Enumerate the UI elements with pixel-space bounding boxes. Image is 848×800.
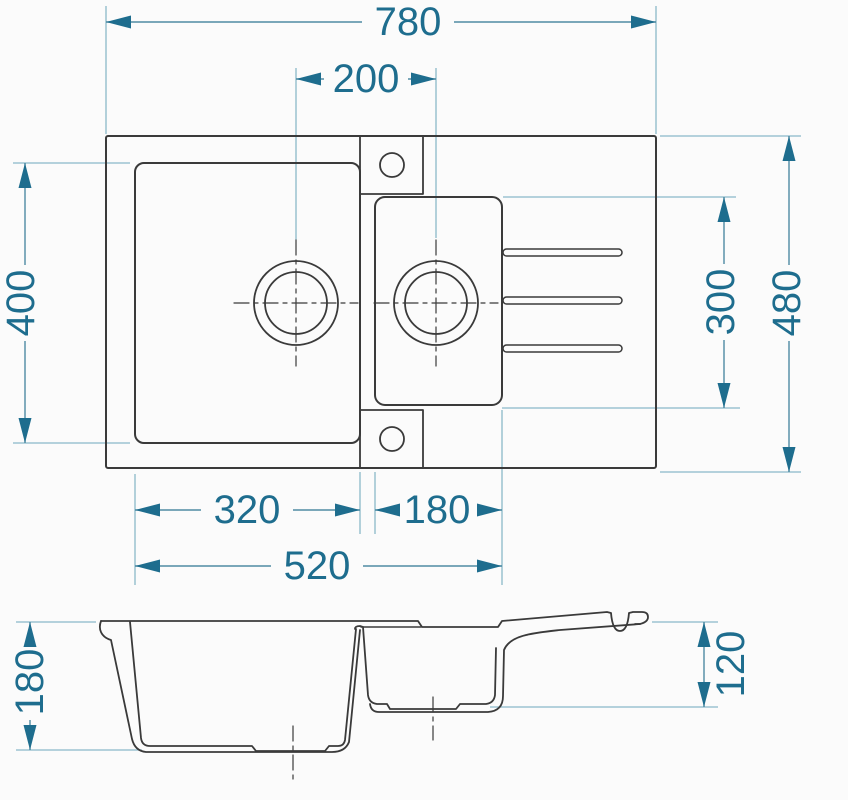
sink-technical-drawing: 780 200 400 300 480 320 180 520 180 120 <box>0 0 848 800</box>
dim-main-bowl-length-label: 400 <box>0 270 43 337</box>
dim-overall-width-label: 780 <box>375 0 442 44</box>
dim-drain-offset-label: 200 <box>333 57 400 101</box>
technical-drawing-page: 780 200 400 300 480 320 180 520 180 120 <box>0 0 848 800</box>
dim-bowls-total-width-label: 520 <box>284 544 351 588</box>
dim-small-bowl-depth-label: 120 <box>709 631 753 698</box>
dim-main-bowl-depth-label: 180 <box>8 649 52 716</box>
dim-overall-depth-label: 480 <box>765 270 809 337</box>
dim-main-bowl-width-label: 320 <box>214 488 281 532</box>
dim-right-section-length-label: 300 <box>699 269 743 336</box>
dim-small-bowl-width-label: 180 <box>404 488 471 532</box>
